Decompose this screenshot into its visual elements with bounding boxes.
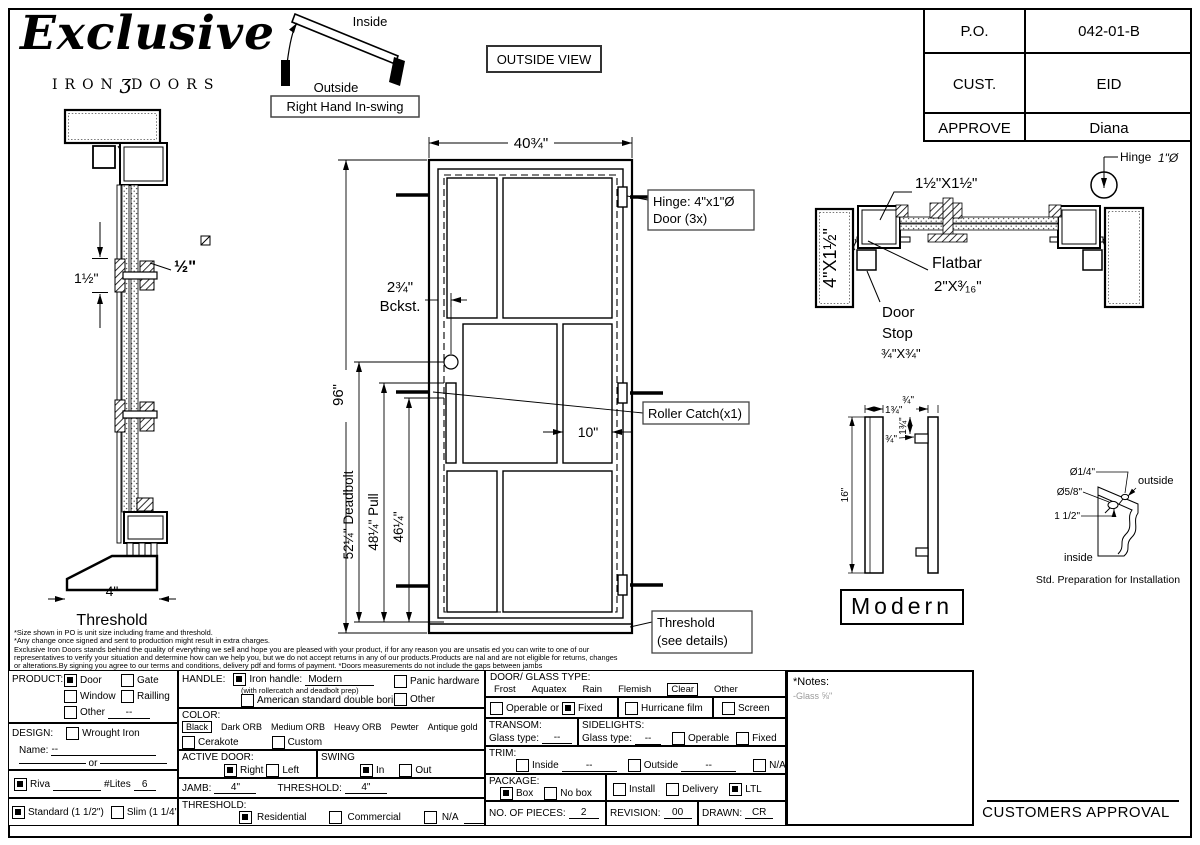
flatbar-size: 2"X³⁄₁₆" (934, 278, 982, 295)
color-heavy-orb[interactable]: Heavy ORB (334, 722, 382, 732)
option-door: Door (80, 675, 102, 686)
iron-handle-label: Iron handle: (249, 674, 302, 685)
notes-title: *Notes: (793, 676, 829, 688)
option-window: Window (80, 691, 116, 702)
checkbox-in[interactable] (360, 764, 373, 777)
trim-outside-value[interactable]: -- (681, 760, 736, 772)
drawn-label: DRAWN: (702, 808, 742, 819)
option-sidelights-operable: Operable (688, 733, 729, 744)
transom-glass-label: Glass type: (489, 733, 539, 744)
glass-rain[interactable]: Rain (583, 684, 603, 695)
cust-value: EID (1026, 54, 1192, 114)
outside-label: outside (1138, 475, 1173, 487)
transom-label: TRANSOM: (489, 720, 542, 731)
glass-frost[interactable]: Frost (494, 684, 516, 695)
pieces-cell: NO. OF PIECES:2 (485, 801, 606, 826)
pull-handle-detail: 1¾" ¾" 1¾" ¾" 16" Modern (840, 385, 1010, 630)
glass-other[interactable]: Other (714, 684, 738, 695)
threshold-label-line1: Threshold (657, 615, 715, 630)
active-door-label: ACTIVE DOOR: (182, 752, 254, 763)
notes-line: -Glass ⅝" (793, 691, 832, 701)
po-value: 042-01-B (1026, 10, 1192, 52)
doorstop-leader (867, 271, 880, 302)
option-ltl: LTL (745, 784, 762, 795)
jamb-cell: JAMB:4"THRESHOLD:4" (178, 778, 485, 798)
frame-outline (429, 160, 632, 633)
stile-tube-left (858, 206, 900, 248)
stile-tube-right (1058, 206, 1100, 248)
glass-pane-2 (131, 185, 138, 512)
option-left: Left (282, 765, 299, 776)
tube-size-text: 1½"X1½" (915, 175, 977, 192)
checkbox-gate[interactable] (121, 674, 134, 687)
glass-aquatex[interactable]: Aquatex (532, 684, 567, 695)
glazing-hatch-bottom (928, 234, 967, 242)
checkbox-sidelights-operable[interactable] (672, 732, 685, 745)
door-leaf (438, 169, 623, 618)
glass-clear-selected[interactable]: Clear (667, 683, 698, 696)
checkbox-nobox[interactable] (544, 787, 557, 800)
door-stop-section (93, 146, 115, 168)
dim-length-text: 16" (840, 487, 851, 502)
flatbar-edge (117, 185, 121, 543)
swing-caption: Right Hand In-swing (286, 99, 403, 114)
or-divider-text: or (89, 758, 98, 769)
swing-cell: SWING InOut (317, 750, 485, 778)
dim-bar-size: ½" (174, 257, 196, 276)
hinge-middle (618, 383, 627, 403)
prep-caption: Std. Preparation for Installation (1036, 574, 1180, 586)
order-form: PRODUCT: Door Gate Window Railling Other… (8, 670, 974, 826)
trim-label: TRIM: (489, 748, 516, 759)
title-block-row: CUST. EID (925, 52, 1192, 114)
transom-glass-value[interactable]: -- (542, 732, 572, 744)
option-sidelights-fixed: Fixed (752, 733, 776, 744)
option-slim: Slim (1 1/4") (127, 807, 182, 818)
operable-or: or (550, 703, 559, 714)
handle-style-name: Modern (851, 593, 953, 619)
color-dark-orb[interactable]: Dark ORB (221, 722, 262, 732)
crossbar-flatbar (123, 272, 157, 279)
lites-value[interactable]: 6 (134, 779, 156, 791)
revision-label: REVISION: (610, 808, 661, 819)
hole-small (1121, 494, 1128, 499)
checkbox-door[interactable] (64, 674, 77, 687)
revision-value[interactable]: 00 (664, 807, 692, 819)
glazing-hatch-right (1049, 205, 1061, 217)
revision-cell: REVISION:00 (606, 801, 698, 826)
pull-handle (446, 383, 456, 463)
checkbox-operable[interactable] (490, 702, 503, 715)
pieces-value[interactable]: 2 (569, 807, 599, 819)
option-panic: Panic hardware (410, 676, 479, 687)
checkbox-threshold-na[interactable] (424, 811, 437, 824)
swing-inside-label: Inside (353, 14, 388, 29)
option-box: Box (516, 788, 533, 799)
dim-mid-text: 46¼" (391, 511, 406, 542)
hurricane-cell: Hurricane film (618, 697, 713, 718)
dim-standoff-thk-arrow (899, 437, 914, 438)
brand-ornament-icon: ʒ (120, 70, 131, 94)
glass-panel-top-right (503, 178, 612, 318)
color-antique-gold[interactable]: Antique gold (428, 722, 478, 732)
brand-sub-left: IRON (52, 77, 120, 93)
checkbox-delivery[interactable] (666, 783, 679, 796)
door-stop-left (857, 250, 876, 270)
option-install: Install (629, 784, 655, 795)
brand-sub-right: DOORS (131, 77, 220, 93)
lites-label: #Lites (104, 779, 131, 790)
glass-panel-mid-right (563, 324, 612, 463)
sidelights-label: SIDELIGHTS: (582, 720, 644, 731)
approval-signature-line[interactable] (987, 800, 1179, 802)
checkbox-ltl[interactable] (729, 783, 742, 796)
option-commercial: Commercial (347, 812, 400, 823)
title-block: P.O. 042-01-B CUST. EID APPROVE Diana (923, 10, 1192, 142)
square-bar-symbol-slash (201, 236, 210, 245)
option-riva: Riva (30, 779, 50, 790)
iron-handle-value[interactable]: Modern (305, 674, 374, 686)
delivery-cell: InstallDeliveryLTL (606, 774, 786, 801)
option-threshold-na: N/A (442, 812, 459, 823)
dim-width-text: 40¾" (514, 135, 549, 152)
glass-strip-1 (900, 217, 1058, 223)
roller-label: Roller Catch(x1) (648, 406, 742, 421)
other-product-value[interactable]: -- (108, 707, 150, 719)
sidelights-glass-value[interactable]: -- (635, 733, 661, 745)
offset-label: 1 1/2" (1054, 511, 1080, 522)
approve-value: Diana (1026, 114, 1192, 142)
outside-arrow (1128, 488, 1136, 496)
dim-side-width-text: ¾" (902, 395, 914, 406)
bottom-rail-tube (124, 512, 167, 543)
threshold-type-cell: THRESHOLD: ResidentialCommercialN/A (178, 798, 485, 826)
option-out: Out (415, 765, 431, 776)
brand-logo: Exclusive (20, 6, 275, 61)
option-screen: Screen (738, 703, 770, 714)
handle-side-view (928, 417, 938, 573)
glazing-hatch-bar (943, 198, 953, 237)
design-name-value[interactable]: -- (51, 744, 156, 756)
hinge-bottom (618, 575, 627, 595)
swing-left-jamb (281, 60, 290, 86)
hinge-label-line1: Hinge: 4"x1"Ø (653, 194, 735, 209)
option-delivery: Delivery (682, 784, 718, 795)
option-other: Other (80, 707, 105, 718)
disclaimer-text: *Size shown in PO is unit size including… (14, 629, 794, 670)
checkbox-install[interactable] (613, 783, 626, 796)
checkbox-trim-inside[interactable] (516, 759, 529, 772)
weatherstrip-dashed (444, 175, 617, 612)
dim-front-width-text: 1¾" (885, 405, 903, 416)
dim-bar-height: 1½" (74, 270, 98, 286)
hinge-top (618, 187, 627, 207)
horizontal-section: Hinge 1"Ø 1½"X1½" 4"X1½" Flatbar 2"X³⁄₁₆… (810, 140, 1195, 375)
checkbox-right[interactable] (224, 764, 237, 777)
swing-label: SWING (321, 752, 355, 763)
checkbox-out[interactable] (399, 764, 412, 777)
jamb-threshold-label: THRESHOLD: (277, 783, 341, 794)
trim-cell: TRIM: Inside--Outside--N/A (485, 746, 786, 774)
checkbox-window[interactable] (64, 690, 77, 703)
dim-height-text: 96" (330, 384, 347, 406)
handle-standoff-bottom (916, 548, 928, 556)
option-trim-inside: Inside (532, 760, 559, 771)
door-stop-right (1083, 250, 1102, 270)
hinge-dia-text: 1"Ø (1158, 151, 1179, 165)
jamb-size-text: 4"X1½" (820, 228, 840, 288)
color-cell: COLOR: BlackDark ORBMedium ORBHeavy ORBP… (178, 708, 485, 750)
option-american-boring: American standard double boring (257, 695, 404, 706)
option-trim-na: N/A (769, 760, 786, 771)
dim-threshold-width: 4" (106, 583, 119, 599)
design-label: DESIGN: (12, 728, 53, 739)
glass-flemish[interactable]: Flemish (618, 684, 651, 695)
dim-standoff-proj-text: 1¾" (898, 417, 909, 435)
checkbox-sidelights-fixed[interactable] (736, 732, 749, 745)
checkbox-residential[interactable] (239, 811, 252, 824)
sidelights-glass-label: Glass type: (582, 733, 632, 744)
design-cell: DESIGN:Wrought Iron Name:-- or (8, 723, 178, 770)
trim-inside-value[interactable]: -- (562, 760, 617, 772)
operable-fixed-cell: OperableorFixed (485, 697, 618, 718)
checkbox-panic[interactable] (394, 675, 407, 688)
top-rail-tube (120, 143, 167, 185)
option-handle-other: Other (410, 694, 435, 705)
active-door-cell: ACTIVE DOOR: RightLeft (178, 750, 317, 778)
deadbolt-circle (444, 355, 458, 369)
threshold-type-label: THRESHOLD: (182, 800, 246, 811)
package-label: PACKAGE: (489, 776, 539, 787)
option-gate: Gate (137, 675, 159, 686)
or-divider-line (19, 763, 86, 764)
glass-type-label: DOOR/ GLASS TYPE: (490, 672, 590, 683)
product-label: PRODUCT: (12, 674, 63, 685)
option-hurricane: Hurricane film (641, 703, 703, 714)
glass-pane-1 (122, 185, 129, 512)
package-cell: PACKAGE: BoxNo box (485, 774, 606, 801)
threshold-section-label: Threshold (76, 612, 147, 629)
screen-cell: Screen (713, 697, 786, 718)
color-medium-orb[interactable]: Medium ORB (271, 722, 325, 732)
color-label: COLOR: (182, 710, 220, 721)
transom-cell: TRANSOM: Glass type:-- (485, 718, 578, 746)
prep-detail: Ø1/4" Ø5/8" 1 1/2" outside inside Std. P… (1020, 455, 1195, 595)
checkbox-iron-handle[interactable] (233, 673, 246, 686)
threshold-post-2 (139, 543, 145, 556)
handle-cell: HANDLE:Iron handle:Modern Panic hardware… (178, 670, 485, 708)
shop-drawing-sheet: Exclusive IRONʒDOORS Inside Outside Righ… (0, 0, 1200, 845)
threshold-post-3 (151, 543, 157, 556)
handle-front-view (865, 417, 883, 573)
glass-panel-bottom-left (447, 471, 497, 612)
or-divider-line (100, 763, 167, 764)
option-railling: Railling (137, 691, 170, 702)
option-right: Right (240, 765, 263, 776)
brand-subtitle: IRONʒDOORS (52, 70, 220, 94)
checkbox-box[interactable] (500, 787, 513, 800)
product-cell: PRODUCT: Door Gate Window Railling Other… (8, 670, 178, 723)
jamb-vertical-section: 1½" ½" 4" Threshold (38, 100, 238, 648)
checkbox-left[interactable] (266, 764, 279, 777)
option-nobox: No box (560, 788, 592, 799)
option-in: In (376, 765, 384, 776)
sidelights-cell: SIDELIGHTS: Glass type:--OperableFixed (578, 718, 786, 746)
head-jamb-box (65, 110, 160, 143)
checkbox-cerakote[interactable] (182, 736, 195, 749)
jamb-label: JAMB: (182, 783, 211, 794)
checkbox-american-boring[interactable] (241, 694, 254, 707)
flatbar-word: Flatbar (932, 255, 982, 272)
checkbox-hurricane[interactable] (625, 702, 638, 715)
option-custom-color: Custom (288, 737, 322, 748)
crossbar2-flatbar (123, 411, 157, 418)
jamb-threshold-value[interactable]: 4" (345, 782, 387, 794)
design-name-label: Name: (19, 745, 48, 756)
dim-standoff-thk-text: ¾" (885, 434, 897, 445)
dim-panel-text: 10" (578, 424, 599, 440)
glass-strip-2 (900, 224, 1058, 230)
inside-label: inside (1064, 552, 1093, 564)
hinge-word: Hinge (1120, 150, 1152, 164)
drawn-value[interactable]: CR (745, 807, 773, 819)
pieces-label: NO. OF PIECES: (489, 808, 566, 819)
option-residential: Residential (257, 812, 306, 823)
jamb-right-box (1105, 208, 1143, 307)
checkbox-riva[interactable] (14, 778, 27, 791)
hole-fiveeighths-label: Ø5/8" (1057, 487, 1083, 498)
glass-type-cell: DOOR/ GLASS TYPE: FrostAquatexRainFlemis… (485, 670, 786, 697)
dim-deadbolt-text: 52¼" Deadbolt (341, 470, 356, 559)
dim-backset-text: 2¾" (387, 279, 413, 296)
riva-cell: Riva#Lites6 (8, 770, 178, 798)
option-operable: Operable (506, 703, 547, 714)
approve-label: APPROVE (925, 114, 1026, 142)
notes-cell: *Notes: -Glass ⅝" (786, 670, 974, 826)
checkbox-trim-na[interactable] (753, 759, 766, 772)
hole-large (1108, 501, 1118, 508)
checkbox-screen[interactable] (722, 702, 735, 715)
title-block-row: APPROVE Diana (925, 112, 1192, 142)
color-pewter[interactable]: Pewter (391, 722, 419, 732)
outside-view-label: OUTSIDE VIEW (486, 45, 602, 73)
checkbox-trim-outside[interactable] (628, 759, 641, 772)
jamb-value[interactable]: 4" (214, 782, 256, 794)
option-fixed: Fixed (578, 703, 602, 714)
option-cerakote: Cerakote (198, 737, 239, 748)
swing-outside-label: Outside (314, 80, 359, 95)
door-elevation: 40¾" 96" 2¾" Bckst. 52¼" Deadbolt 48¼" P… (330, 130, 760, 675)
dim-backset-word: Bckst. (380, 298, 421, 315)
checkbox-fixed[interactable] (562, 702, 575, 715)
glazing-hatch-left (896, 205, 908, 217)
po-label: P.O. (925, 10, 1026, 52)
checkbox-railling[interactable] (121, 690, 134, 703)
color-black-selected[interactable]: Black (182, 721, 212, 733)
option-trim-outside: Outside (644, 760, 678, 771)
glass-panel-top-left (447, 178, 497, 318)
thickness-cell: Standard (1 1/2")Slim (1 1/4") (8, 798, 178, 826)
bottom-glazing-hatch (137, 498, 153, 511)
threshold-leader (630, 622, 652, 627)
swing-arc-arrow (287, 23, 297, 64)
threshold-post-1 (127, 543, 133, 556)
approval-label: CUSTOMERS APPROVAL (960, 804, 1192, 821)
option-wrought-iron: Wrought Iron (82, 728, 140, 739)
doorstop-word1: Door (882, 304, 915, 321)
checkbox-standard[interactable] (12, 806, 25, 819)
glass-panel-mid-left (463, 324, 557, 463)
swing-diagram: Inside Outside Right Hand In-swing (270, 8, 435, 120)
checkbox-handle-other[interactable] (394, 693, 407, 706)
glass-panel-bottom-right (503, 471, 612, 612)
hinge-label-line2: Door (3x) (653, 211, 707, 226)
checkbox-wrought-iron[interactable] (66, 727, 79, 740)
cust-label: CUST. (925, 54, 1026, 114)
doorstop-size: ¾"X¾" (881, 346, 921, 361)
riva-value[interactable] (53, 779, 101, 791)
checkbox-other-product[interactable] (64, 706, 77, 719)
handle-standoff-top (915, 434, 928, 443)
handle-label: HANDLE: (182, 674, 225, 685)
title-block-row: P.O. 042-01-B (925, 10, 1192, 52)
option-standard: Standard (1 1/2") (28, 807, 104, 818)
checkbox-custom-color[interactable] (272, 736, 285, 749)
checkbox-slim[interactable] (111, 806, 124, 819)
doorstop-word2: Stop (882, 325, 913, 342)
dim-pull-text: 48¼" Pull (366, 493, 381, 550)
hole-quarter-label: Ø1/4" (1070, 467, 1096, 478)
drawn-cell: DRAWN:CR (698, 801, 786, 826)
checkbox-commercial[interactable] (329, 811, 342, 824)
